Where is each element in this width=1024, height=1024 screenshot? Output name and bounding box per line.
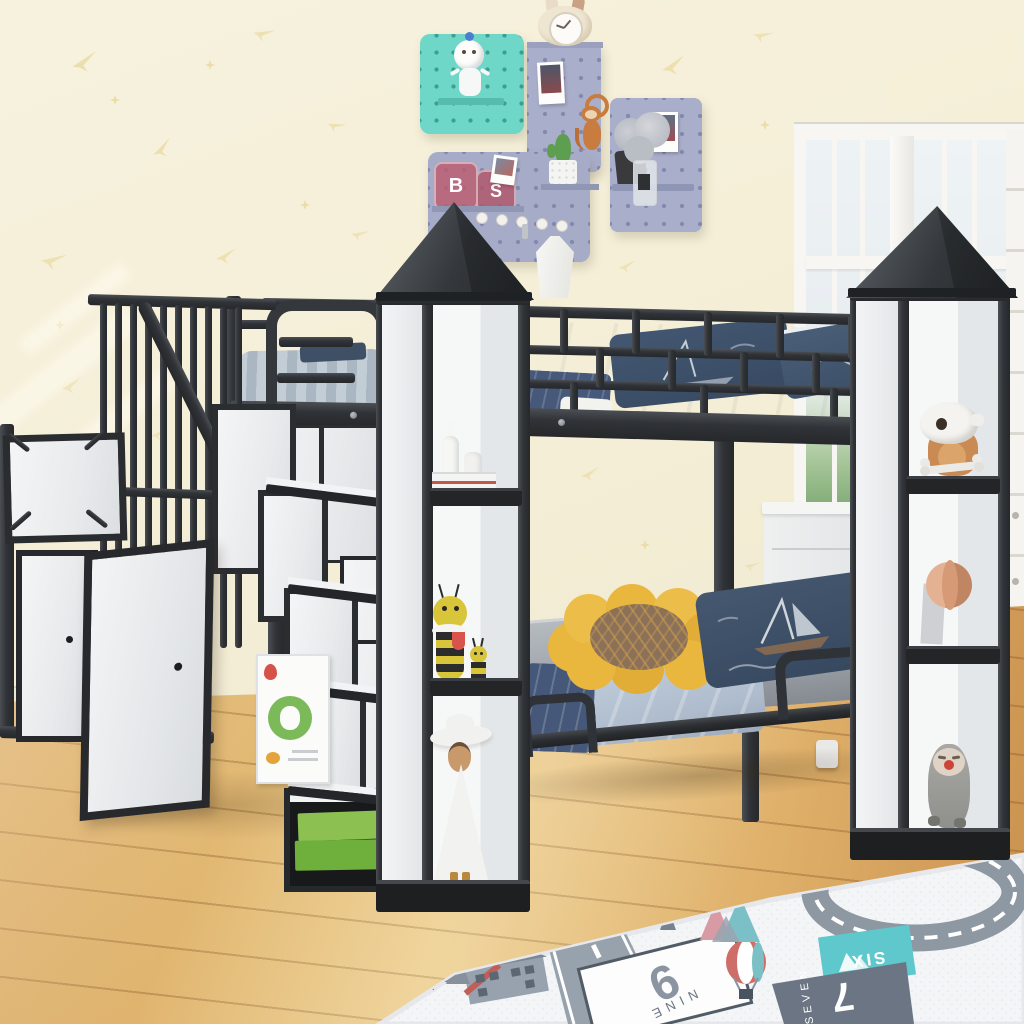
hanging-key [522, 224, 528, 239]
cabinet-door-open-top [3, 432, 128, 543]
peg-hook [556, 220, 568, 232]
lady-figurine [426, 710, 496, 894]
guardrail-bar [596, 348, 604, 388]
right-tower-base [850, 828, 1010, 860]
center-tower-shelf [430, 678, 522, 696]
guardrail-bar [704, 312, 712, 356]
sloth-figurine [924, 740, 976, 830]
green-storage-box [295, 839, 384, 871]
door-knob [66, 636, 73, 643]
right-tower-column [998, 292, 1010, 858]
toy-box [256, 654, 330, 784]
center-tower-shelf [430, 488, 522, 506]
right-tower-shelf [906, 646, 1000, 664]
dried-flowers [614, 112, 674, 212]
right-tower-column [898, 292, 909, 858]
door-knob [174, 662, 182, 671]
right-tower-side-panel [856, 294, 902, 856]
green-storage-box [298, 811, 379, 842]
peg-hook [476, 212, 488, 224]
bed-rear-post [714, 430, 734, 626]
right-tower-roof-lip [848, 288, 1016, 297]
guardrail-bar [812, 353, 820, 393]
monkey-toy [575, 94, 609, 160]
center-tower-roof-lip [376, 292, 532, 301]
bunny-clock [538, 0, 594, 46]
cabinet-door-open-large [80, 539, 215, 821]
drawer-knob [1012, 512, 1019, 519]
guardrail-bar [632, 310, 640, 354]
kids-room-photo: B S [0, 0, 1024, 1024]
guardrail-bar [776, 314, 784, 358]
center-tower-side-panel [382, 298, 424, 906]
wooden-sphere-ornament [918, 558, 978, 648]
cactus-pot [545, 134, 579, 186]
pegboard-shelf [541, 184, 599, 190]
guardrail-bar [560, 309, 568, 353]
skull-figurine [918, 400, 986, 480]
guardrail-bar [740, 352, 748, 392]
center-tower-base [376, 880, 530, 912]
robot-figurine [448, 40, 492, 100]
polaroid-photo [490, 154, 518, 185]
peg-hook [536, 218, 548, 230]
letter-jar-b: B [434, 162, 478, 210]
center-tower-column [518, 296, 530, 908]
drawer-knob [1012, 578, 1019, 585]
bed-rear-leg [742, 730, 759, 822]
peg-hook [496, 214, 508, 226]
pegboard-shelf [432, 206, 524, 212]
right-tower-shelf [906, 476, 1000, 494]
guardrail-bar [668, 350, 676, 390]
polaroid-photo [537, 61, 565, 104]
jar-letter: B [449, 175, 463, 198]
